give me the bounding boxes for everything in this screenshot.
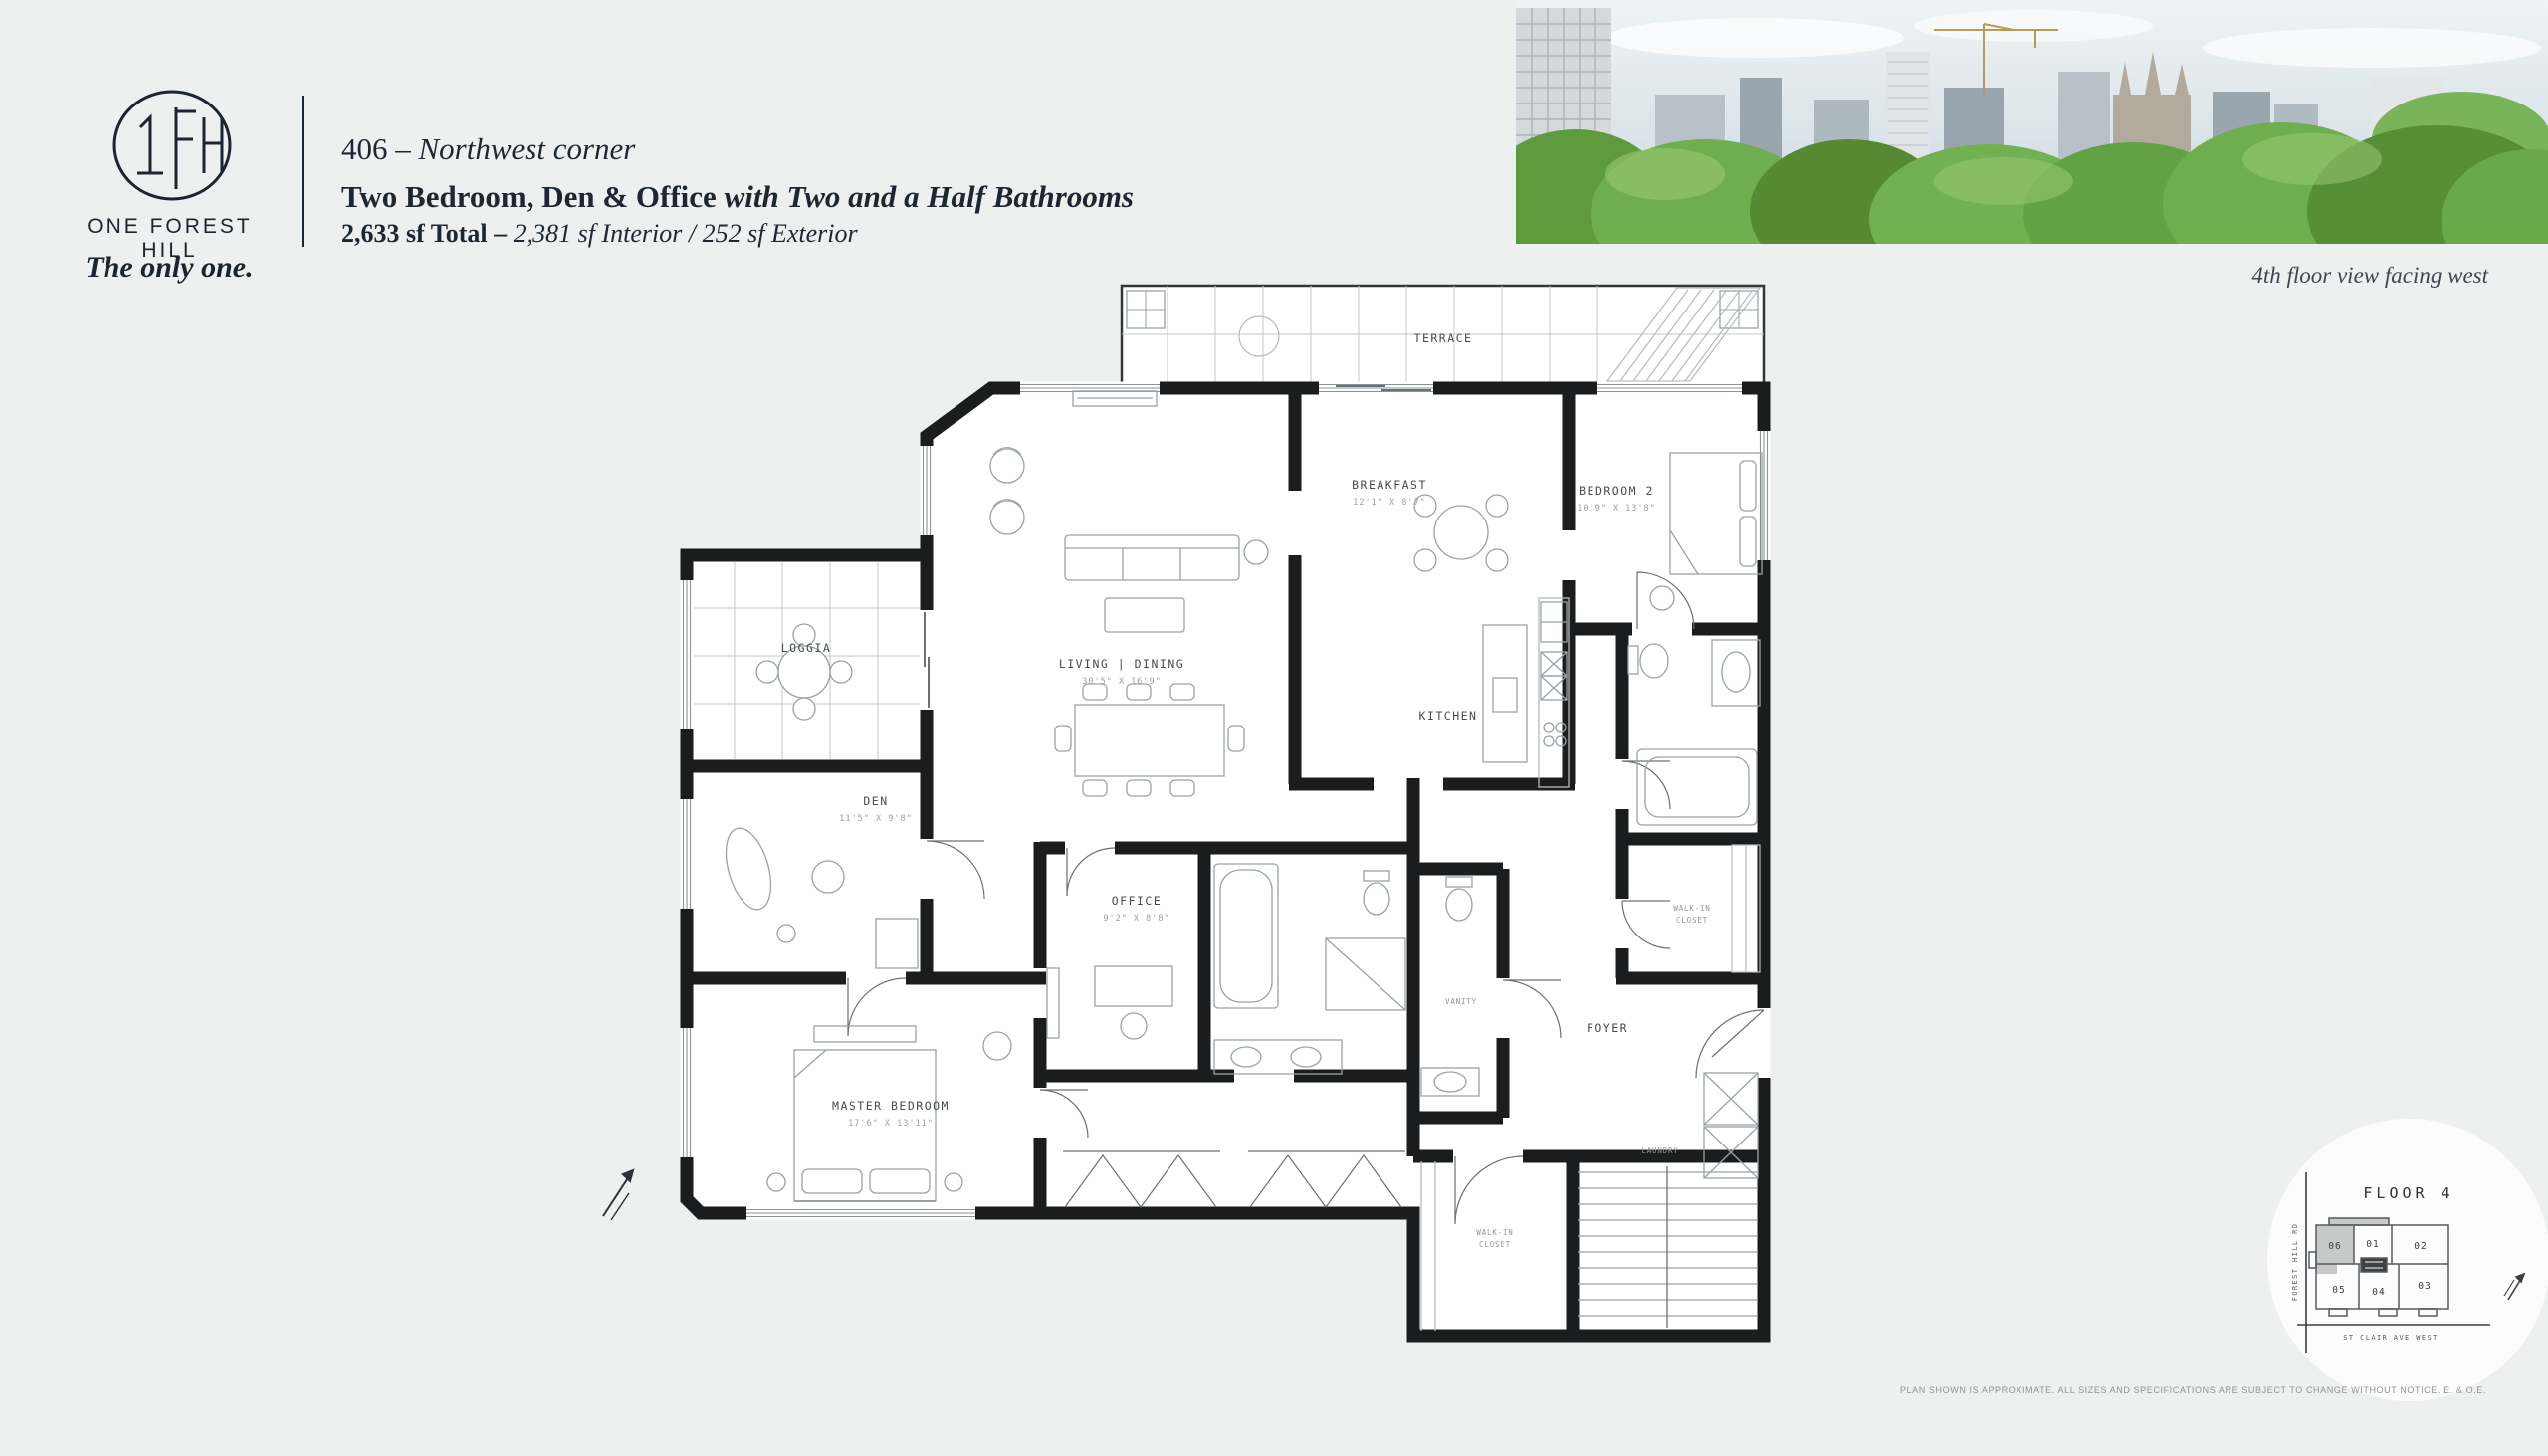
suite-title-suffix: with Two and a Half Bathrooms: [725, 179, 1134, 214]
suite-areas: 2,633 sf Total – 2,381 sf Interior / 252…: [341, 219, 1134, 249]
loggia-label: LOGGIA: [781, 641, 832, 655]
keyplan-unit-05: 05: [2332, 1285, 2345, 1296]
bedroom2-dims: 10'9" X 13'8": [1577, 504, 1656, 514]
bedroom2-label: BEDROOM 2: [1579, 484, 1654, 498]
master-label: MASTER BEDROOM: [832, 1099, 950, 1113]
footer-disclaimer: PLAN SHOWN IS APPROXIMATE. ALL SIZES AND…: [1730, 1385, 2486, 1395]
terrace-room: TERRACE: [1122, 286, 1764, 384]
unit-number: 406: [341, 131, 388, 166]
unit-orientation: Northwest corner: [419, 131, 636, 166]
laundry-label: LAUNDRY: [1641, 1146, 1678, 1155]
keyplan-unit-06: 06: [2328, 1241, 2341, 1252]
area-total: 2,633 sf Total –: [341, 219, 514, 248]
one-forest-hill-logo-icon: [95, 78, 254, 217]
area-detail: 2,381 sf Interior / 252 sf Exterior: [514, 219, 858, 248]
master-dims: 17'6" X 13'11": [848, 1119, 934, 1129]
north-arrow-icon: [589, 1154, 653, 1230]
keyplan-unit-02: 02: [2414, 1241, 2427, 1252]
unit-separator: –: [395, 131, 411, 166]
view-photo: [1516, 0, 2548, 244]
breakfast-label: BREAKFAST: [1352, 478, 1427, 492]
living-label: LIVING | DINING: [1059, 657, 1184, 671]
unit-line: 406 – Northwest corner: [341, 131, 1134, 167]
street-left-label: FOREST HILL RD: [2291, 1223, 2299, 1302]
street-bottom-label: ST CLAIR AVE WEST: [2343, 1334, 2438, 1342]
keyplan-unit-04: 04: [2372, 1287, 2385, 1298]
keyplan: FLOOR 4 FOREST HILL RD ST CLAIR AVE WEST…: [2259, 1113, 2548, 1401]
office-dims: 9'2" X 8'8": [1103, 914, 1169, 924]
terrace-label: TERRACE: [1414, 331, 1473, 345]
suite-title: Two Bedroom, Den & Office with Two and a…: [341, 179, 1134, 215]
office-label: OFFICE: [1112, 894, 1163, 908]
keyplan-unit-01: 01: [2366, 1239, 2379, 1250]
vanity-label: VANITY: [1445, 997, 1477, 1006]
photo-caption: 4th floor view facing west: [2090, 263, 2488, 289]
wic2-label-line1: WALK-IN: [1476, 1228, 1513, 1237]
keyplan-unit-03: 03: [2418, 1281, 2431, 1292]
kitchen-label: KITCHEN: [1419, 709, 1478, 723]
brochure-page: ONE FOREST HILL The only one. 406 – Nort…: [0, 0, 2548, 1456]
den-dims: 11'5" X 9'8": [839, 814, 912, 824]
header-block: 406 – Northwest corner Two Bedroom, Den …: [341, 131, 1134, 249]
brand-tagline: The only one.: [75, 251, 264, 285]
foyer-label: FOYER: [1587, 1021, 1628, 1035]
den-label: DEN: [863, 794, 888, 808]
breakfast-dims: 12'1" X 8'7": [1353, 498, 1425, 508]
wic1-label-line1: WALK-IN: [1673, 904, 1710, 913]
floor-plan: TERRACE: [677, 282, 1792, 1356]
header-divider: [302, 96, 304, 247]
wic1-label-line2: CLOSET: [1676, 916, 1708, 925]
suite-title-main: Two Bedroom, Den & Office: [341, 179, 725, 214]
wic2-label-line2: CLOSET: [1479, 1240, 1511, 1249]
keyplan-title: FLOOR 4: [2363, 1184, 2453, 1202]
living-dims: 30'5" X 16'9": [1082, 677, 1162, 687]
